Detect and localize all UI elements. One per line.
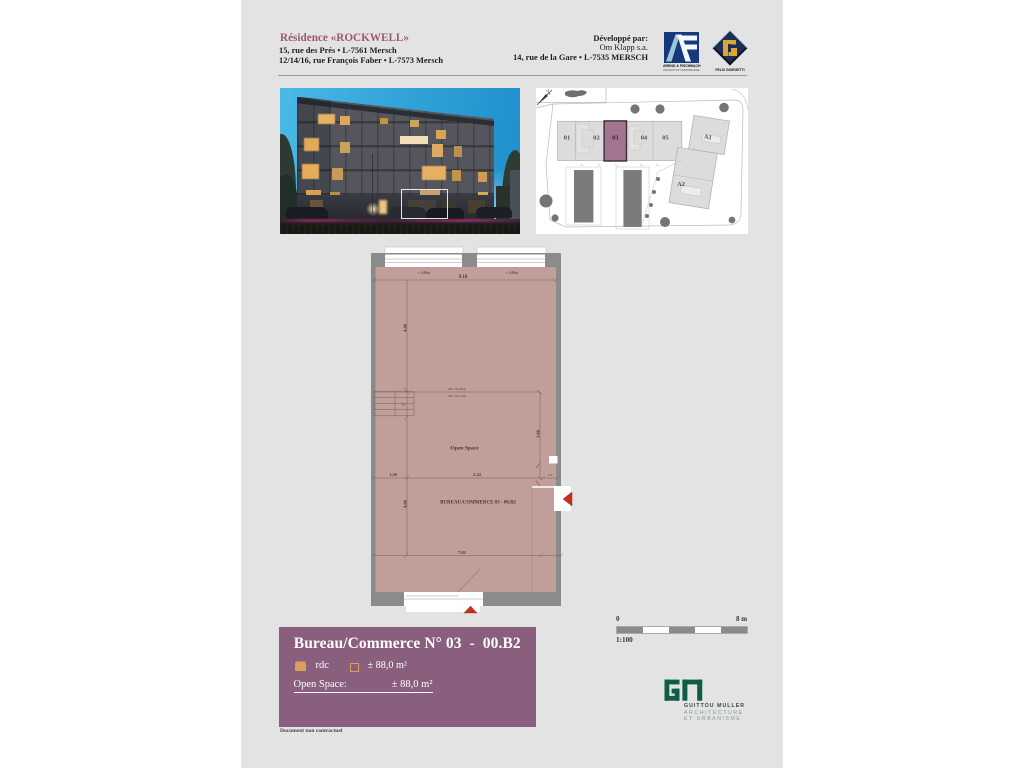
svg-text:9.18: 9.18 [459,275,468,280]
svg-text:4.46: 4.46 [403,323,408,332]
svg-text:01: 01 [564,135,570,142]
svg-text:Niv. ±0.00 m: Niv. ±0.00 m [448,387,466,391]
svg-text:≈ 4.60m: ≈ 4.60m [506,271,518,275]
svg-text:Niv. ±0.13 m: Niv. ±0.13 m [448,394,466,398]
svg-text:5.24: 5.24 [473,472,481,477]
svg-text:A2: A2 [677,181,685,188]
svg-text:03: 03 [612,135,618,142]
svg-text:Open Space: Open Space [450,446,479,452]
svg-text:7.01: 7.01 [458,550,467,555]
svg-text:0.3: 0.3 [548,473,553,477]
svg-text:3.66: 3.66 [536,429,541,438]
svg-text:04: 04 [641,135,648,142]
svg-text:05: 05 [662,135,668,142]
svg-text:BUREAU/COMMERCE 03 - 00.B2: BUREAU/COMMERCE 03 - 00.B2 [440,501,516,506]
svg-text:1.30: 1.30 [389,472,397,477]
svg-text:≈ 4.60m: ≈ 4.60m [418,271,430,275]
svg-text:02: 02 [593,135,599,142]
svg-text:4.66: 4.66 [403,499,408,508]
svg-text:18: 18 [401,403,405,407]
svg-text:A1: A1 [703,133,712,141]
